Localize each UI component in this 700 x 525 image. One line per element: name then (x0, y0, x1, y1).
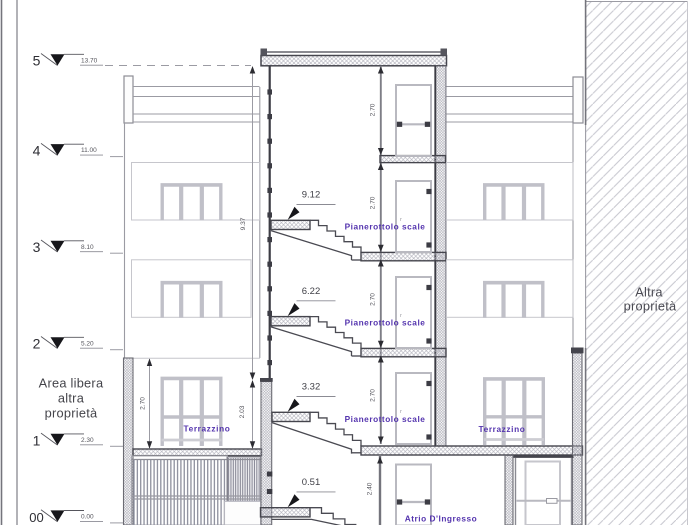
svg-text:2.70: 2.70 (370, 196, 377, 209)
svg-text:13.70: 13.70 (81, 57, 98, 64)
svg-text:5: 5 (33, 53, 41, 69)
svg-text:Terrazzino: Terrazzino (479, 424, 526, 434)
svg-text:Terrazzino: Terrazzino (184, 424, 231, 434)
svg-text:Pianerottolo scale: Pianerottolo scale (345, 318, 426, 328)
svg-text:2.70: 2.70 (370, 103, 377, 116)
svg-text:0.51: 0.51 (302, 477, 321, 488)
svg-text:9.37: 9.37 (240, 217, 247, 230)
svg-text:0.00: 0.00 (81, 514, 94, 521)
svg-text:3: 3 (33, 239, 41, 255)
svg-text:2: 2 (33, 336, 41, 352)
svg-text:5.20: 5.20 (81, 340, 94, 347)
svg-text:2.30: 2.30 (81, 437, 94, 444)
svg-text:Atrio D'Ingresso: Atrio D'Ingresso (405, 514, 478, 524)
svg-text:3.32: 3.32 (302, 382, 321, 393)
svg-text:8.10: 8.10 (81, 244, 94, 251)
svg-text:00: 00 (29, 510, 43, 525)
svg-text:altra: altra (58, 391, 85, 406)
svg-text:2.70: 2.70 (370, 293, 377, 306)
svg-text:2.70: 2.70 (140, 397, 147, 410)
svg-text:2.40: 2.40 (367, 482, 374, 495)
svg-text:9.12: 9.12 (302, 190, 321, 201)
svg-text:Pianerottolo scale: Pianerottolo scale (345, 222, 426, 232)
svg-text:1: 1 (33, 432, 41, 448)
svg-text:4: 4 (33, 143, 41, 159)
svg-text:Area libera: Area libera (39, 376, 104, 391)
svg-text:11.00: 11.00 (81, 147, 97, 154)
svg-text:proprietà: proprietà (45, 406, 98, 421)
svg-text:Altra: Altra (635, 285, 663, 300)
svg-text:6.22: 6.22 (302, 286, 321, 297)
svg-text:Pianerottolo scale: Pianerottolo scale (345, 414, 426, 424)
svg-text:2.70: 2.70 (370, 389, 377, 402)
svg-text:2.03: 2.03 (239, 405, 246, 418)
svg-text:proprietà: proprietà (624, 299, 677, 314)
